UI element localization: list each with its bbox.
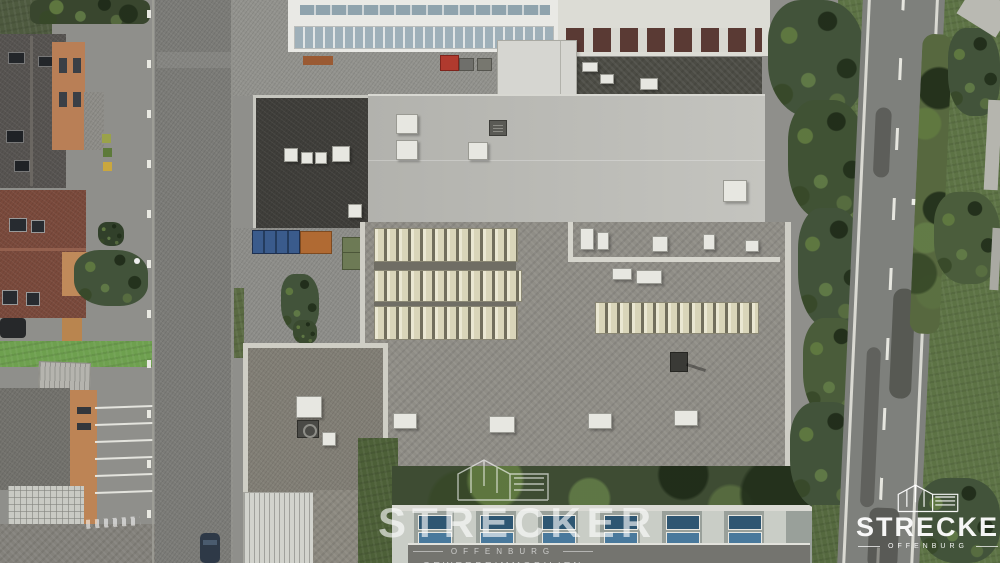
road-center-dashes: [876, 0, 906, 563]
gray-box: [477, 58, 492, 71]
blue-window: [480, 515, 514, 530]
roof-ac-unit: [489, 120, 507, 136]
parked-car-blue: [200, 533, 220, 563]
facade-window: [73, 58, 81, 73]
rooftop-box: [600, 74, 614, 84]
facade-window: [73, 92, 81, 107]
blue-window: [604, 515, 638, 530]
roof-ac-small: [670, 352, 688, 372]
roof-hatch: [348, 204, 362, 218]
parking-line: [95, 439, 153, 443]
roof-skylight: [6, 130, 24, 143]
street-light-patch: [157, 52, 231, 68]
parking-line: [95, 473, 153, 477]
blue-window: [666, 515, 700, 530]
terrace-vent: [703, 234, 715, 250]
roof-skylight-white: [284, 148, 298, 162]
roof-skylight-white: [296, 396, 322, 418]
terrace-parapet-v: [568, 222, 573, 262]
skylight-row-1: [374, 228, 518, 262]
gray-box: [459, 58, 474, 71]
parked-van-dark: [0, 318, 26, 338]
roof-skylight: [31, 220, 45, 233]
roof-ridge: [0, 248, 86, 251]
parking-line: [95, 422, 153, 426]
roof-box: [322, 432, 336, 446]
hall-bottom-wall: [408, 543, 810, 563]
tar-patch: [867, 507, 900, 563]
tar-patch: [873, 107, 892, 178]
yard-gravel-bottom-left: [0, 524, 160, 563]
large-gray-roof: [0, 388, 70, 490]
annex-seam: [560, 41, 561, 99]
terrace-vent: [652, 236, 668, 252]
gravel-strip-bottom: [313, 490, 358, 563]
facade-window: [77, 407, 91, 414]
dark-flat-roof: [253, 95, 376, 234]
waste-bin: [103, 162, 112, 171]
roof-vent: [396, 140, 418, 160]
roof-seam: [368, 160, 765, 161]
skylight-row-3: [374, 306, 518, 340]
red-container: [440, 55, 459, 71]
roof-vent: [396, 114, 418, 134]
waste-bin: [102, 134, 111, 143]
roof-skylight: [8, 52, 25, 64]
street-left: [155, 0, 233, 563]
facade-window: [59, 58, 67, 73]
roof-skylight-flat: [674, 410, 698, 426]
roof-pallet: [612, 268, 632, 280]
hall-roof-white: [558, 0, 770, 56]
hall-roof-light: [368, 94, 765, 224]
shed-roof: [84, 92, 104, 150]
roof-skylight-white: [332, 146, 350, 162]
greenhouse-roof: [8, 486, 84, 526]
parking-line: [95, 405, 153, 409]
terrace-parapet-h: [568, 257, 780, 262]
roof-ac-unit: [297, 420, 319, 438]
skylight-row-right: [595, 302, 759, 334]
roof-ridge: [30, 36, 33, 186]
car-windshield: [203, 540, 217, 545]
courtyard-bush: [293, 320, 317, 344]
curb-line: [152, 0, 154, 563]
roof-skylight-flat: [489, 416, 515, 433]
blue-window: [728, 515, 762, 530]
orange-container: [300, 231, 332, 254]
parking-bays: [95, 400, 155, 496]
waste-bin: [103, 148, 112, 157]
roof-skylight-white: [315, 152, 327, 164]
parking-line: [95, 456, 153, 460]
terrace-vent: [597, 232, 609, 250]
terrace-vent: [580, 228, 594, 250]
blue-containers: [252, 230, 300, 254]
hedge-top-left: [30, 0, 150, 24]
roof-vent: [723, 180, 747, 202]
trees-bottom-right: [918, 478, 1000, 563]
roof-skylight: [9, 218, 27, 232]
skylight-band-darkred: [566, 28, 762, 52]
roof-vent: [468, 142, 488, 160]
corrugated-roof-bottom: [243, 492, 315, 563]
bush: [98, 222, 124, 246]
roof-skylight: [2, 290, 18, 305]
rooftop-box: [640, 78, 658, 90]
facade-window: [59, 92, 67, 107]
roof-skylight-flat: [393, 413, 417, 429]
pallet-stack: [303, 56, 333, 65]
glass-strip: [300, 5, 550, 15]
ac-grill: [493, 124, 503, 132]
roof-skylight: [38, 56, 53, 67]
fence-posts: [147, 10, 151, 550]
roof-skylight-flat: [588, 413, 612, 429]
rooftop-box: [582, 62, 598, 72]
terrace-vent: [745, 240, 759, 252]
tar-patch: [860, 347, 881, 507]
roof-skylight: [14, 160, 30, 172]
ac-fan: [303, 424, 317, 438]
roof-skylight-white: [301, 152, 313, 164]
white-annex-roof: [497, 40, 577, 100]
facade-window: [77, 423, 91, 430]
skylight-row-2: [374, 270, 522, 302]
roof-skylight: [26, 292, 40, 306]
aerial-photo: STRECKER OFFENBURG GEWERBEIMMOBILIEN STR…: [0, 0, 1000, 563]
street-lamp: [134, 258, 140, 264]
roof-pallet: [636, 270, 662, 284]
blue-window: [418, 515, 452, 530]
blue-window: [542, 515, 576, 530]
parking-line: [95, 490, 153, 494]
